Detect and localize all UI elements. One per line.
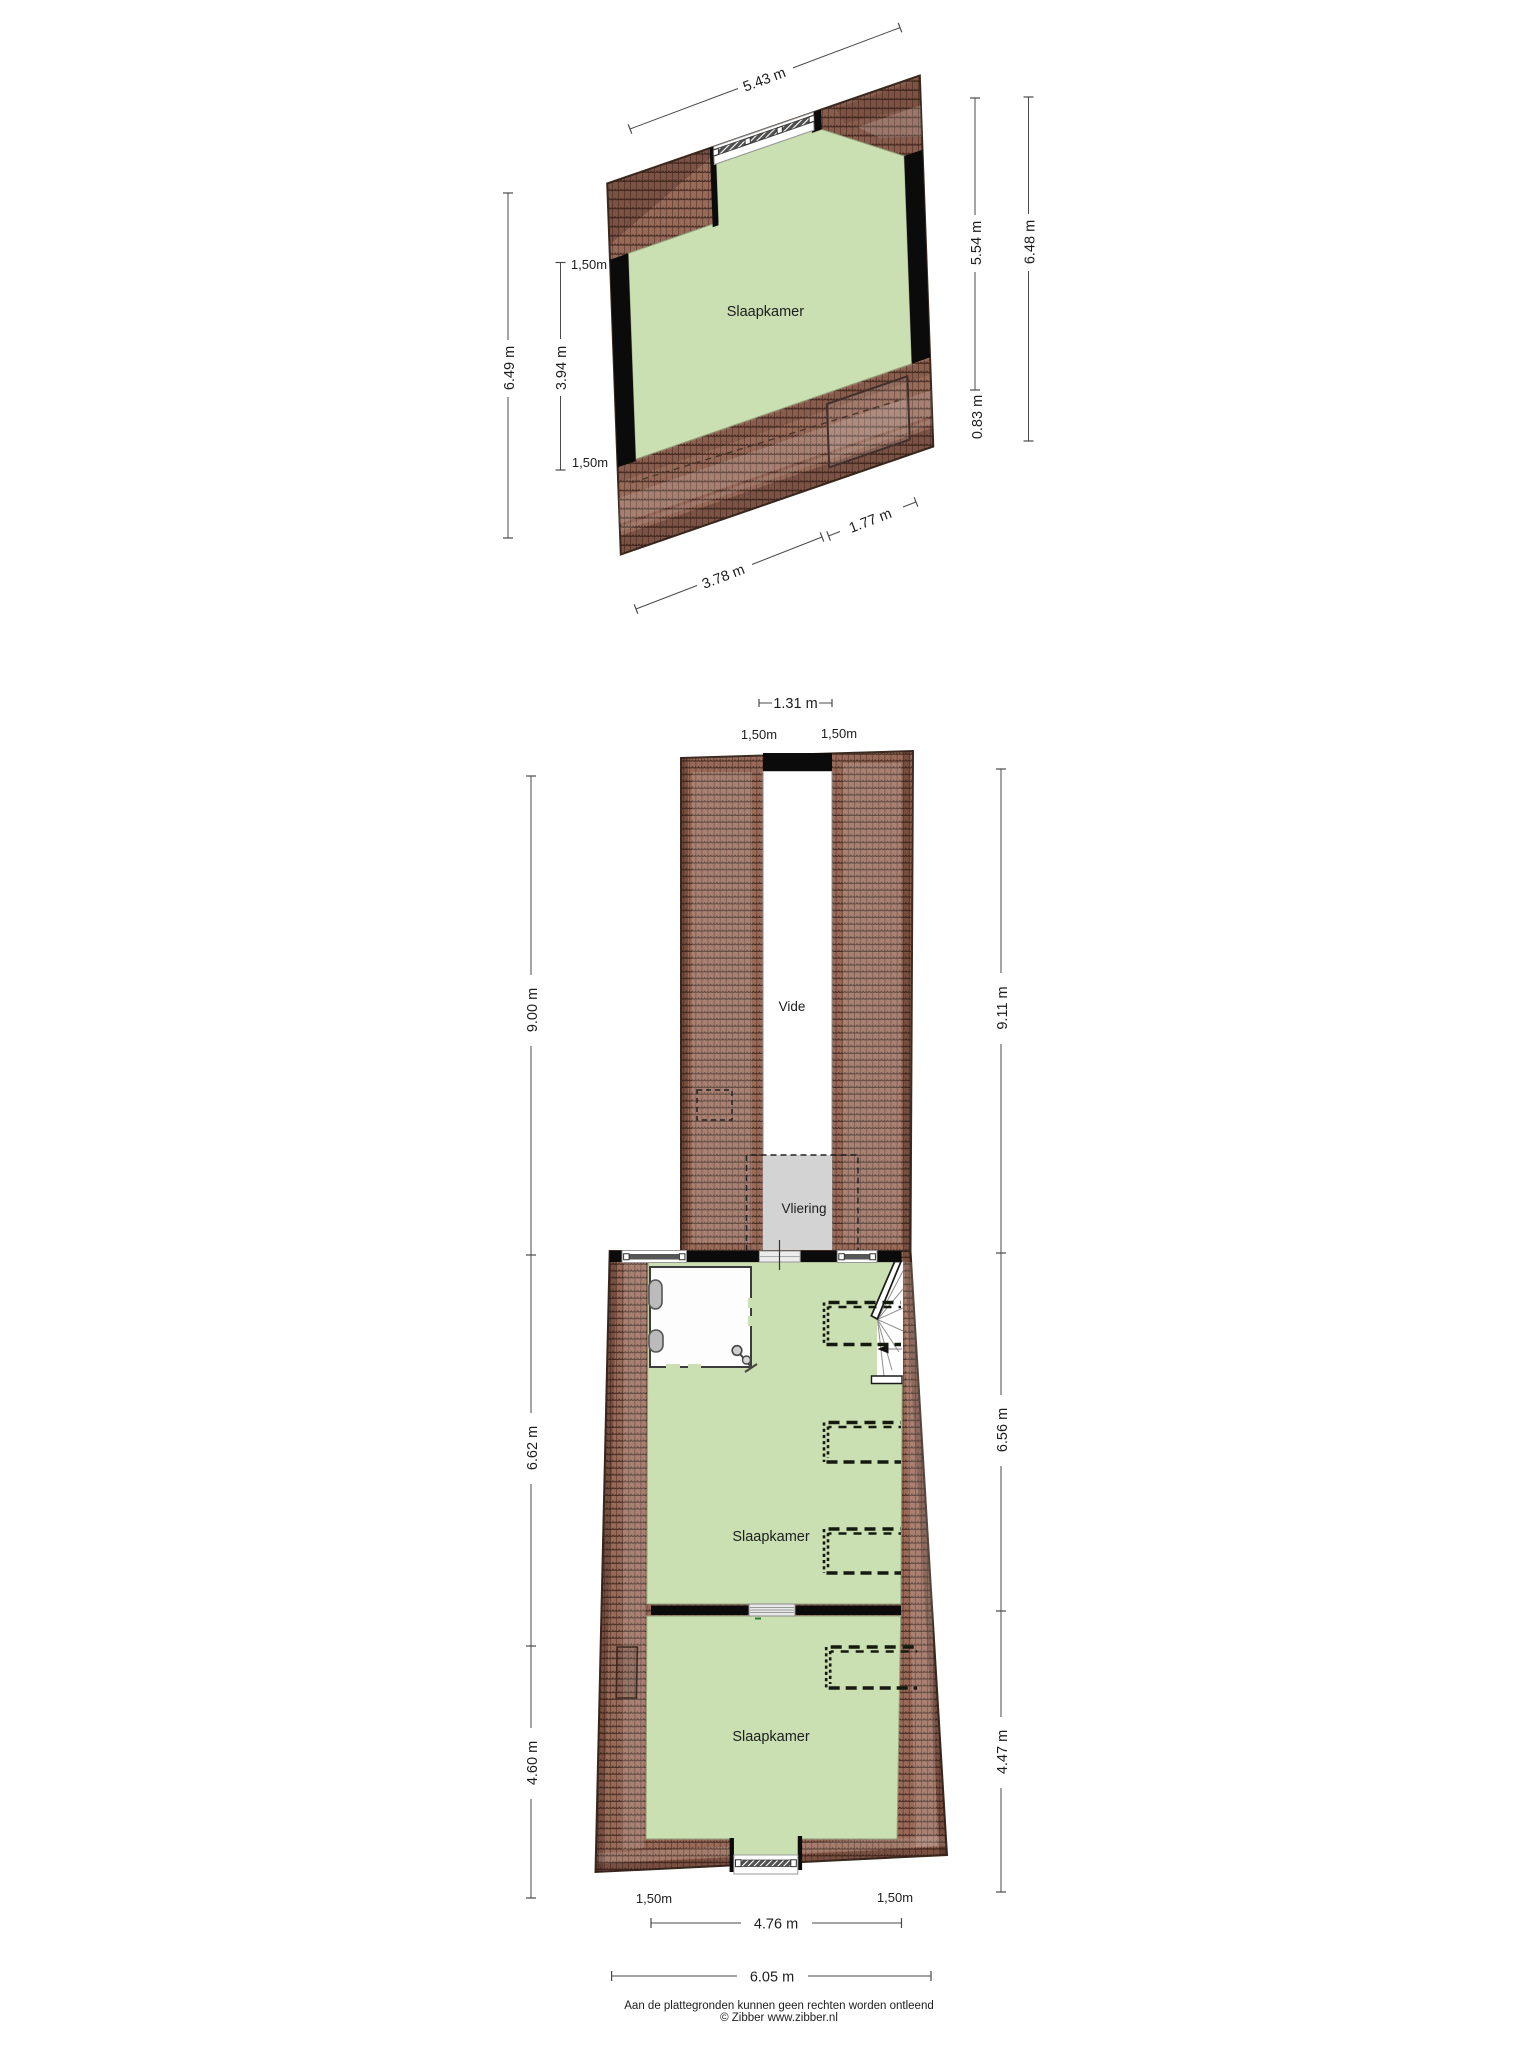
svg-text:Slaapkamer: Slaapkamer — [732, 1529, 810, 1545]
svg-text:9.11 m: 9.11 m — [995, 986, 1011, 1029]
svg-text:0.83 m: 0.83 m — [970, 395, 986, 439]
svg-text:6.48 m: 6.48 m — [1023, 220, 1039, 264]
svg-text:3.94 m: 3.94 m — [554, 346, 570, 390]
svg-text:1,50m: 1,50m — [572, 455, 608, 470]
svg-text:Slaapkamer: Slaapkamer — [727, 304, 805, 320]
svg-text:1,50m: 1,50m — [741, 727, 777, 742]
svg-text:9.00 m: 9.00 m — [525, 988, 541, 1032]
svg-text:1.31 m: 1.31 m — [773, 696, 817, 712]
svg-text:4.47 m: 4.47 m — [995, 1730, 1011, 1774]
svg-text:6.49 m: 6.49 m — [502, 346, 518, 390]
svg-text:4.76 m: 4.76 m — [754, 1917, 798, 1933]
svg-text:6.05 m: 6.05 m — [750, 1970, 794, 1986]
svg-text:4.60 m: 4.60 m — [525, 1741, 541, 1785]
svg-text:1,50m: 1,50m — [636, 1891, 672, 1906]
svg-text:Aan de plattegronden kunnen ge: Aan de plattegronden kunnen geen rechten… — [624, 2000, 933, 2012]
svg-text:6.56 m: 6.56 m — [995, 1408, 1011, 1452]
svg-text:1,50m: 1,50m — [571, 257, 607, 272]
svg-text:1.77 m: 1.77 m — [847, 506, 894, 537]
svg-text:3.78 m: 3.78 m — [700, 562, 747, 593]
svg-text:© Zibber www.zibber.nl: © Zibber www.zibber.nl — [720, 2012, 838, 2024]
svg-text:Vide: Vide — [779, 999, 806, 1014]
svg-text:1,50m: 1,50m — [877, 1890, 913, 1905]
svg-text:Vliering: Vliering — [781, 1201, 826, 1216]
svg-text:6.62 m: 6.62 m — [525, 1426, 541, 1470]
svg-text:5.54 m: 5.54 m — [969, 221, 985, 265]
svg-text:5.43 m: 5.43 m — [741, 65, 788, 96]
svg-text:Slaapkamer: Slaapkamer — [732, 1729, 810, 1745]
svg-text:1,50m: 1,50m — [821, 726, 857, 741]
